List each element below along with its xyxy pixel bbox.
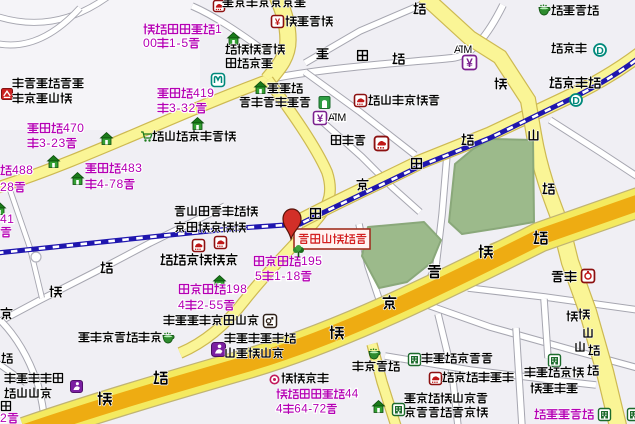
svg-text:41: 41 [0, 212, 14, 226]
svg-text:1: 1 [215, 22, 222, 36]
svg-text:3-32: 3-32 [169, 101, 196, 115]
svg-text:2: 2 [0, 411, 7, 424]
svg-text:488: 488 [12, 163, 33, 177]
svg-text:4: 4 [276, 403, 283, 416]
svg-text:1-5: 1-5 [169, 36, 189, 50]
svg-text:D: D [596, 45, 604, 57]
svg-text:419: 419 [193, 86, 214, 100]
svg-text:470: 470 [63, 121, 84, 135]
svg-text:4: 4 [178, 298, 185, 312]
svg-text:¥: ¥ [466, 57, 473, 70]
svg-text:64-72: 64-72 [294, 403, 326, 416]
svg-text:195: 195 [301, 254, 322, 268]
svg-text:1-18: 1-18 [274, 269, 301, 283]
svg-text:5: 5 [255, 269, 262, 283]
svg-text:00: 00 [143, 36, 157, 50]
svg-text:44: 44 [345, 388, 359, 401]
svg-text:D: D [572, 95, 580, 107]
svg-text:ATM: ATM [454, 44, 472, 56]
svg-text:3-23: 3-23 [39, 136, 66, 150]
svg-text:¥: ¥ [317, 113, 324, 125]
svg-text:2-55: 2-55 [197, 298, 224, 312]
svg-text:¥: ¥ [275, 17, 281, 28]
svg-text:198: 198 [226, 282, 247, 296]
svg-text:483: 483 [121, 161, 142, 175]
svg-text:4-78: 4-78 [97, 177, 124, 191]
svg-text:ATM: ATM [328, 112, 346, 124]
svg-text:28: 28 [0, 180, 14, 194]
